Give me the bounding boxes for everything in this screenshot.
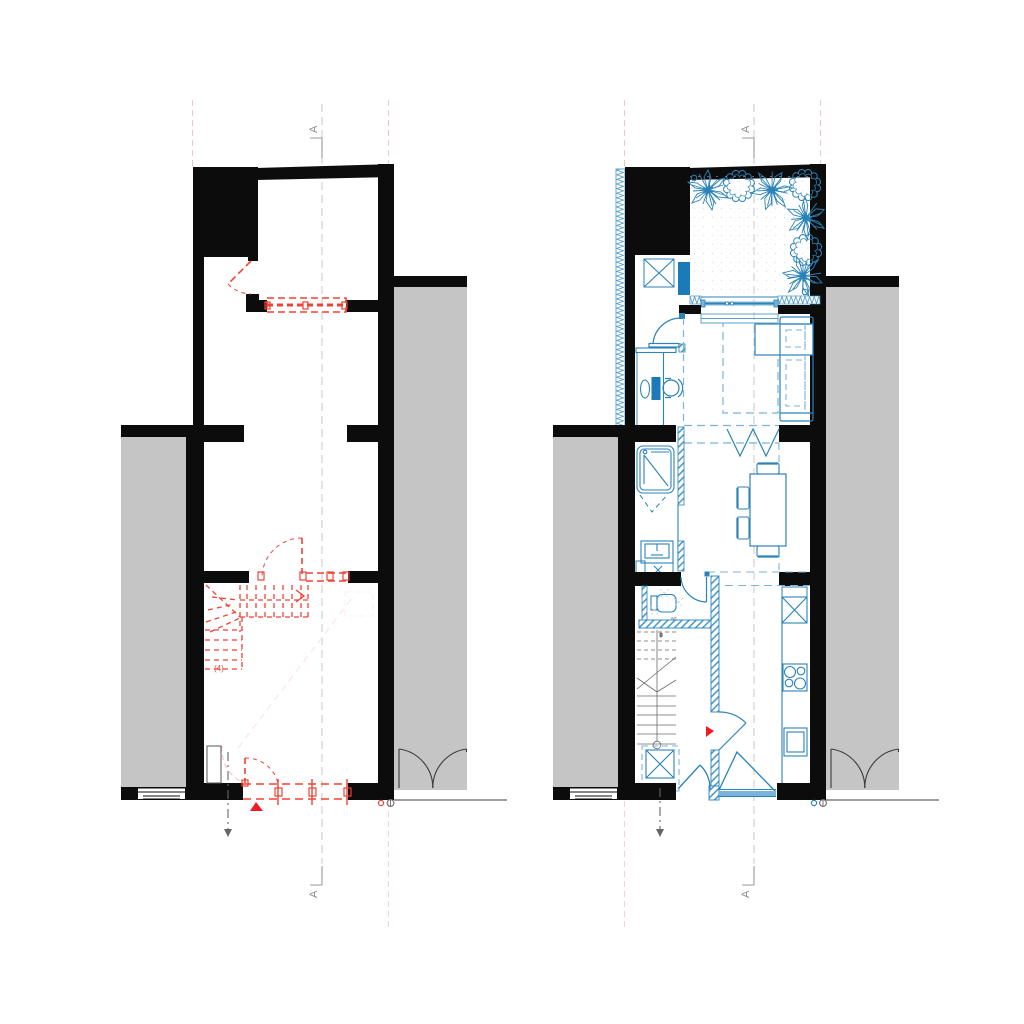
svg-text:A: A	[740, 890, 752, 898]
svg-text:A: A	[308, 890, 320, 898]
svg-text:(4): (4)	[214, 664, 224, 673]
svg-text:9: 9	[660, 633, 663, 639]
svg-text:A: A	[308, 125, 320, 133]
svg-text:A: A	[740, 125, 752, 133]
